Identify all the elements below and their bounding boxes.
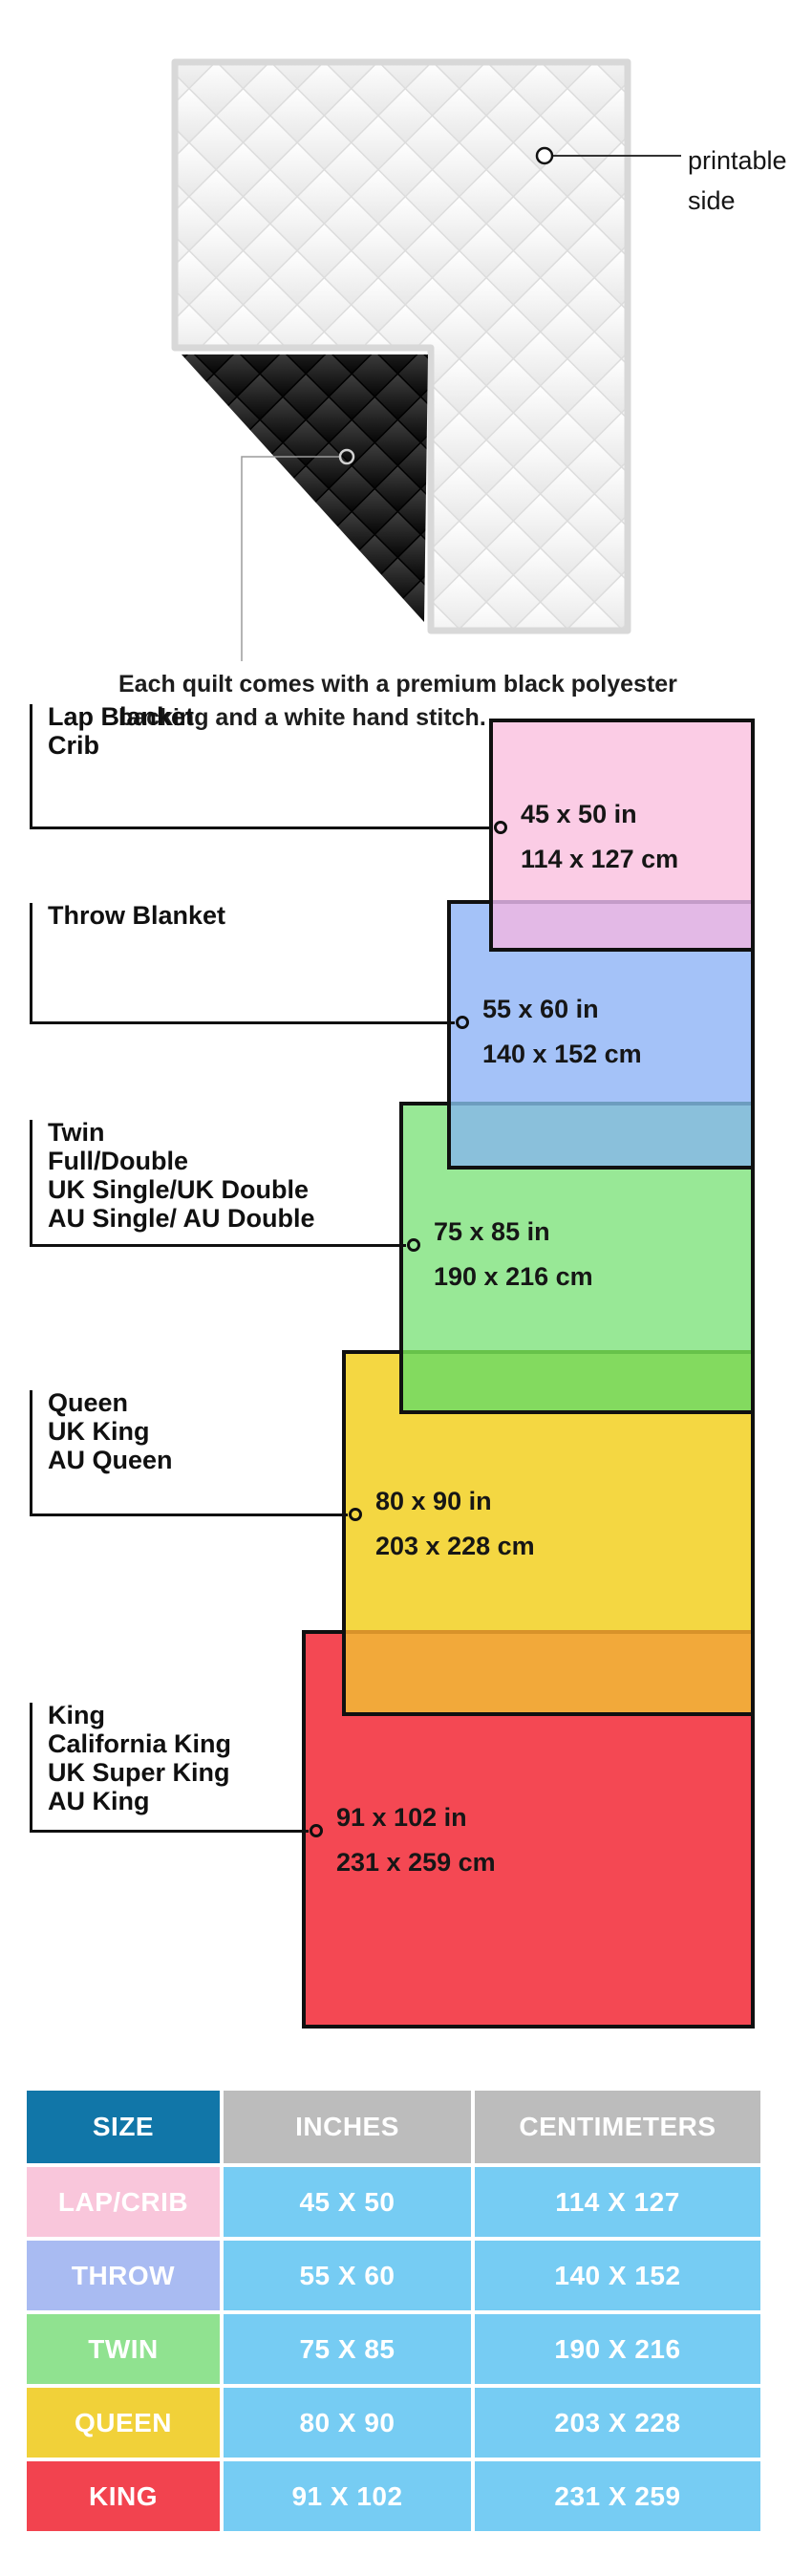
table-cell-inches-4: 91 X 102 bbox=[224, 2461, 471, 2531]
size-table: SIZEINCHESCENTIMETERSLAP/CRIB45 X 50114 … bbox=[0, 0, 791, 2576]
table-cell-inches-1: 55 X 60 bbox=[224, 2241, 471, 2310]
table-cell-inches-3: 80 X 90 bbox=[224, 2388, 471, 2458]
table-cell-size-4: KING bbox=[27, 2461, 220, 2531]
table-cell-size-2: TWIN bbox=[27, 2314, 220, 2384]
table-cell-cm-1: 140 X 152 bbox=[475, 2241, 760, 2310]
table-cell-cm-4: 231 X 259 bbox=[475, 2461, 760, 2531]
table-cell-size-0: LAP/CRIB bbox=[27, 2167, 220, 2237]
table-cell-size-1: THROW bbox=[27, 2241, 220, 2310]
table-header-size: SIZE bbox=[27, 2091, 220, 2163]
table-cell-inches-0: 45 X 50 bbox=[224, 2167, 471, 2237]
table-cell-size-3: QUEEN bbox=[27, 2388, 220, 2458]
table-cell-cm-2: 190 X 216 bbox=[475, 2314, 760, 2384]
table-cell-cm-3: 203 X 228 bbox=[475, 2388, 760, 2458]
table-header-centimeters: CENTIMETERS bbox=[475, 2091, 760, 2163]
table-header-inches: INCHES bbox=[224, 2091, 471, 2163]
quilt-size-guide: printable side Each quilt comes with a p… bbox=[0, 0, 791, 2576]
table-cell-inches-2: 75 X 85 bbox=[224, 2314, 471, 2384]
table-cell-cm-0: 114 X 127 bbox=[475, 2167, 760, 2237]
